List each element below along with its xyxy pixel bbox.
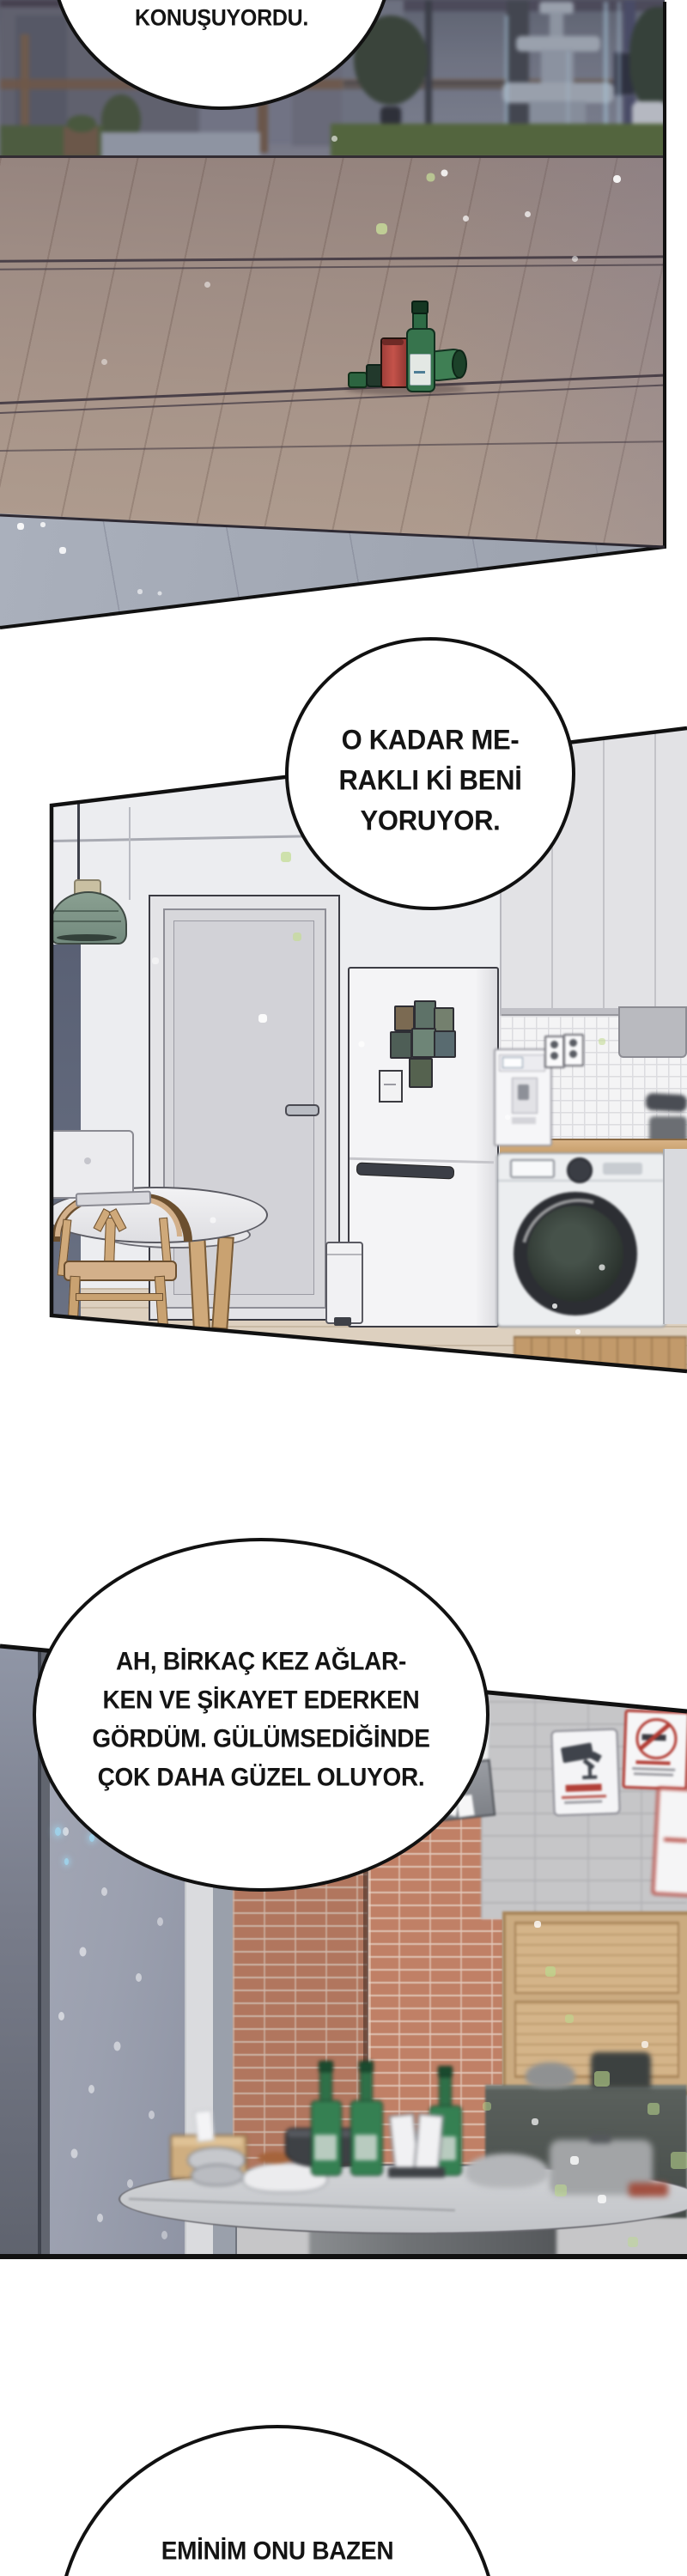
tissue <box>194 2110 215 2142</box>
walkway <box>101 132 260 158</box>
sign-red-text-line <box>635 1760 670 1765</box>
photo-magnet <box>411 1028 436 1058</box>
soju-bottle-cap <box>411 301 429 314</box>
menu-stand-base <box>388 2167 445 2178</box>
trash-bin <box>325 1242 363 1324</box>
washer-drum-highlight <box>499 1177 659 1337</box>
speech-text: RAKLI Kİ BENİ <box>338 758 521 801</box>
fountain-basin-large <box>502 82 614 103</box>
fountain-neck <box>550 12 563 36</box>
photo-magnet <box>390 1031 412 1059</box>
washer-knob <box>567 1157 593 1183</box>
no-smoking-icon <box>628 1712 687 1714</box>
camera-lens <box>590 1752 602 1763</box>
light-switch <box>563 1034 584 1066</box>
sign-gray-text-line <box>564 1800 602 1804</box>
sign-gray-text-line <box>634 1772 673 1777</box>
speech-text: AH, BİRKAÇ KEZ AĞLAR- <box>116 1641 406 1682</box>
bottle-cap <box>348 372 368 388</box>
bin-lid-line <box>327 1254 362 1255</box>
switch-toggle <box>569 1039 577 1047</box>
washer-display <box>510 1159 555 1178</box>
counter-pot-silhouette <box>591 2052 651 2088</box>
speech-text: O KADAR ME- <box>342 718 520 761</box>
laptop-base <box>76 1190 152 1206</box>
camera-base <box>582 1776 597 1780</box>
garden-lamp-head <box>380 106 401 125</box>
switch-toggle <box>569 1050 577 1058</box>
appliance-side-panel <box>663 1149 687 1324</box>
sign-red-text-line <box>562 1795 606 1799</box>
slat-panel <box>514 1922 679 1994</box>
pendant-lamp-ridge <box>52 920 121 922</box>
speech-text-block: EMİNİM ONU BAZEN SİNİRLENDİRİYORSUNUZDUR… <box>60 2531 495 2576</box>
no-smoking-sign <box>622 1710 687 1791</box>
pendant-lamp-ridge <box>55 910 119 912</box>
speech-bubble-4: EMİNİM ONU BAZEN SİNİRLENDİRİYORSUNUZDUR… <box>57 2425 498 2576</box>
tile-sparkles <box>0 507 2 508</box>
light-switch <box>544 1036 565 1068</box>
speech-bubble-2: O KADAR ME- RAKLI Kİ BENİ YORUYOR. <box>285 637 575 910</box>
sign-gray-text-line <box>632 1767 675 1771</box>
water-stream <box>505 15 508 131</box>
chair-leg <box>67 1276 80 1330</box>
pot-lid-handle <box>589 2135 611 2143</box>
utensil-bar <box>646 1093 687 1112</box>
soju-bottle-label <box>355 2135 377 2160</box>
cabinet-seam <box>603 721 605 1016</box>
note-text-line <box>384 1084 396 1085</box>
counter-bowl <box>526 2063 575 2088</box>
chair-stretcher <box>76 1293 163 1301</box>
fridge-note <box>379 1070 403 1103</box>
red-dish <box>629 2183 668 2196</box>
switch-toggle <box>550 1041 558 1048</box>
speech-bubble-3: AH, BİRKAÇ KEZ AĞLAR- KEN VE ŞİKAYET EDE… <box>33 1538 489 1892</box>
soju-bottle-cap <box>359 2061 374 2072</box>
speech-text: EMİNİM ONU BAZEN <box>60 2530 495 2572</box>
laptop-screen <box>48 1130 134 1199</box>
partial-sign <box>652 1787 687 1898</box>
speech-text: KEN VE ŞİKAYET EDERKEN <box>103 1680 420 1721</box>
lying-bottle-mouth <box>452 349 467 379</box>
water-stream <box>617 2 621 141</box>
speech-text: SİNİRLENDİRİYORSUNUZDUR. <box>60 2569 495 2576</box>
soju-bottle-cap <box>438 2066 453 2077</box>
grass <box>331 124 687 158</box>
rain-glow-drop <box>55 1827 61 1836</box>
webtoon-page: KONUŞUYORDU. O KADAR ME- RAKLI Kİ BENİ Y… <box>0 0 687 2576</box>
metal-bowl <box>191 2164 244 2186</box>
laptop-logo <box>84 1157 91 1164</box>
purifier-screen <box>502 1057 523 1068</box>
water-stream <box>604 2 608 141</box>
tree <box>629 7 687 112</box>
photo-magnet <box>434 1007 454 1033</box>
purifier-tray <box>512 1117 536 1124</box>
soju-bottle-label <box>314 2135 337 2160</box>
door-handle <box>285 1104 319 1116</box>
purifier-spout <box>518 1084 529 1100</box>
washer-buttons <box>603 1163 642 1175</box>
water-stream <box>567 52 569 131</box>
planter-plant <box>67 115 96 132</box>
speech-text: YORUYOR. <box>361 799 501 841</box>
gray-bowls <box>465 2154 548 2188</box>
cabinet-seam <box>654 721 656 1016</box>
switch-toggle <box>550 1052 558 1060</box>
speech-text: ÇOK DAHA GÜZEL OLUYOR. <box>98 1757 425 1798</box>
sign-red-bar <box>566 1783 602 1791</box>
soju-bottle-label <box>410 354 431 386</box>
soju-bottle-cap <box>319 2061 333 2072</box>
hanging-shelf <box>618 1006 687 1058</box>
speech-text: GÖRDÜM. GÜLÜMSEDİĞİNDE <box>92 1718 429 1759</box>
wood-platform <box>514 1336 687 1379</box>
photo-magnet <box>434 1030 456 1058</box>
photo-magnet <box>409 1058 433 1088</box>
speech-text: KONUŞUYORDU. <box>53 0 390 36</box>
red-can-top <box>382 339 404 345</box>
bottle-group <box>343 301 472 399</box>
sign-red-text-line <box>664 1838 687 1842</box>
bin-pedal <box>334 1317 351 1326</box>
cctv-sign <box>550 1728 620 1817</box>
cctv-camera-icon <box>552 1730 616 1733</box>
water-purifier <box>494 1048 552 1146</box>
wall-corner-line <box>129 807 131 900</box>
washing-machine <box>496 1152 666 1327</box>
rain-glow-drop <box>64 1858 69 1865</box>
deck-sparkles <box>0 0 3 3</box>
pendant-lamp-inner <box>57 934 117 941</box>
soju-label-mark <box>414 371 425 374</box>
camera-body <box>561 1742 594 1763</box>
